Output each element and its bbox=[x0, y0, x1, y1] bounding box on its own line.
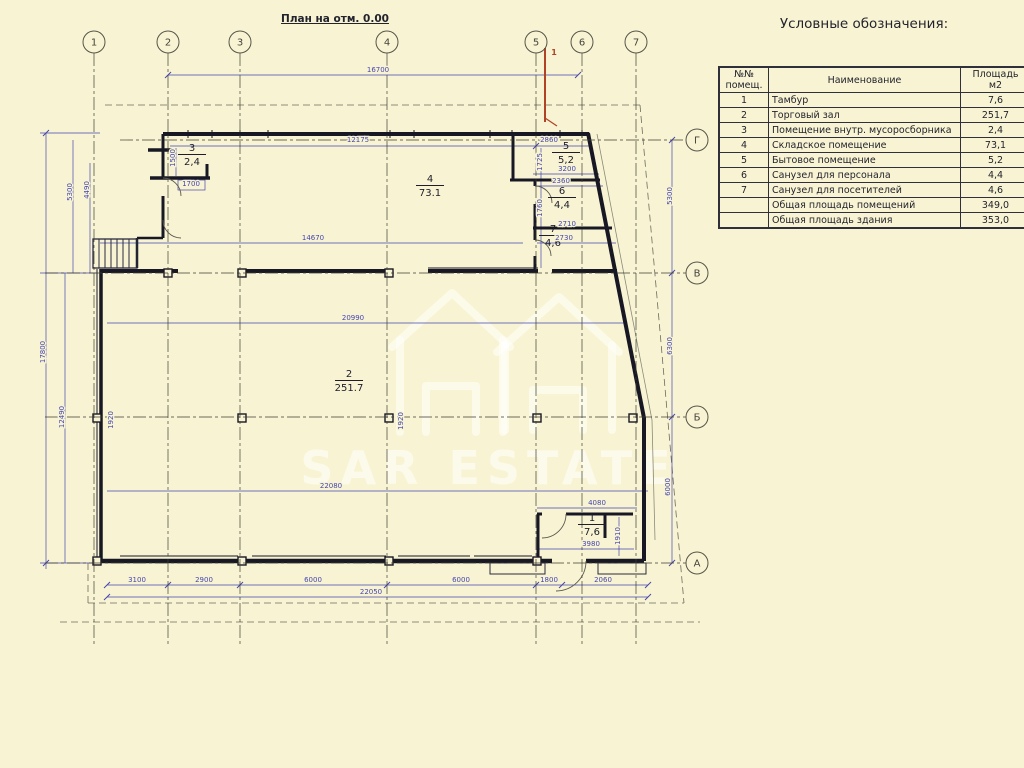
legend-row: 3Помещение внутр. мусоросборника2,4 bbox=[719, 123, 1024, 138]
column-marker bbox=[238, 414, 246, 422]
dimension-label: 4080 bbox=[588, 499, 606, 507]
grid-column-label: 2 bbox=[165, 38, 171, 49]
entrance-steps bbox=[490, 563, 646, 574]
dimension-label: 1760 bbox=[536, 199, 544, 217]
dimension-label: 6300 bbox=[666, 337, 674, 355]
dimension-label: 2900 bbox=[195, 576, 213, 584]
legend-cell-number: 4 bbox=[719, 138, 769, 153]
room-number: 6 bbox=[559, 186, 565, 197]
legend-cell-number bbox=[719, 198, 769, 213]
dimension-label: 1700 bbox=[182, 180, 200, 188]
drawing-title: План на отм. 0.00 bbox=[270, 13, 400, 25]
grid-column-label: 4 bbox=[384, 38, 390, 49]
legend-row: Общая площадь здания353,0 bbox=[719, 213, 1024, 229]
legend-panel: Условные обозначения: №№ помещ.Наименова… bbox=[716, 16, 1012, 229]
dimension-label: 6000 bbox=[452, 576, 470, 584]
grid-column-label: 7 bbox=[633, 38, 639, 49]
column-marker bbox=[385, 414, 393, 422]
grid-column-label: 5 bbox=[533, 38, 539, 49]
dimension-label: 4490 bbox=[83, 181, 91, 199]
watermark-house-icon bbox=[392, 293, 510, 347]
dimension-label: 12175 bbox=[347, 136, 369, 144]
dimension-label: 16700 bbox=[367, 66, 389, 74]
room-area: 2,4 bbox=[184, 157, 200, 168]
dimension-label: 1920 bbox=[397, 412, 405, 430]
legend-cell-number: 7 bbox=[719, 183, 769, 198]
legend-row: 2Торговый зал251,7 bbox=[719, 108, 1024, 123]
legend-row: Общая площадь помещений349,0 bbox=[719, 198, 1024, 213]
legend-title: Условные обозначения: bbox=[716, 16, 1012, 32]
dimension-label: 22050 bbox=[360, 588, 382, 596]
grid-row-label: Г bbox=[694, 136, 700, 147]
legend-cell-name: Санузел для персонала bbox=[769, 168, 961, 183]
dimension-label: 5300 bbox=[666, 187, 674, 205]
room-number: 4 bbox=[427, 174, 433, 185]
room-number: 2 bbox=[346, 369, 352, 380]
grid-row-label: В bbox=[694, 269, 701, 280]
column-marker bbox=[385, 557, 393, 565]
legend-row: 5Бытовое помещение5,2 bbox=[719, 153, 1024, 168]
grid-column-label: 3 bbox=[237, 38, 243, 49]
legend-cell-area: 5,2 bbox=[961, 153, 1024, 168]
legend-row: 1Тамбур7,6 bbox=[719, 93, 1024, 108]
room-area: 7,6 bbox=[584, 527, 600, 538]
dim-ticks bbox=[43, 72, 675, 600]
watermark-house-icon bbox=[497, 297, 619, 352]
dimension-lines bbox=[40, 72, 675, 600]
roof-dashed-outline bbox=[60, 105, 700, 622]
legend-cell-number: 5 bbox=[719, 153, 769, 168]
column-marker bbox=[533, 557, 541, 565]
legend-cell-name: Складское помещение bbox=[769, 138, 961, 153]
column-marker bbox=[533, 414, 541, 422]
column-marker bbox=[238, 557, 246, 565]
grid-row-label: Б bbox=[694, 413, 701, 424]
dimension-label: 6000 bbox=[664, 478, 672, 496]
legend-cell-area: 73,1 bbox=[961, 138, 1024, 153]
dimension-label: 1920 bbox=[107, 411, 115, 429]
legend-cell-area: 353,0 bbox=[961, 213, 1024, 229]
legend-cell-area: 251,7 bbox=[961, 108, 1024, 123]
legend-col-header: Площадь м2 bbox=[961, 67, 1024, 93]
legend-cell-name: Тамбур bbox=[769, 93, 961, 108]
legend-cell-name: Общая площадь здания bbox=[769, 213, 961, 229]
dimension-label: 1800 bbox=[540, 576, 558, 584]
dimension-label: 2060 bbox=[594, 576, 612, 584]
dimension-label: 2360 bbox=[552, 177, 570, 185]
legend-cell-area: 2,4 bbox=[961, 123, 1024, 138]
legend-cell-name: Помещение внутр. мусоросборника bbox=[769, 123, 961, 138]
dimension-label: 3100 bbox=[128, 576, 146, 584]
watermark-text: SAR ESTATE bbox=[300, 441, 677, 495]
legend-row: 4Складское помещение73,1 bbox=[719, 138, 1024, 153]
legend-cell-number: 2 bbox=[719, 108, 769, 123]
dimension-label: 3980 bbox=[582, 540, 600, 548]
dimension-labels: 1670012175286032002360271027301700146702… bbox=[39, 66, 674, 596]
revision-number: 1 bbox=[551, 48, 557, 57]
revision-marker: 1 bbox=[545, 48, 557, 126]
legend-row: 6Санузел для персонала4,4 bbox=[719, 168, 1024, 183]
dimension-label: 12490 bbox=[58, 406, 66, 428]
dimension-label: 2730 bbox=[555, 234, 573, 242]
legend-table: №№ помещ.НаименованиеПлощадь м2 1Тамбур7… bbox=[718, 66, 1024, 229]
dimension-label: 1500 bbox=[169, 149, 177, 167]
room-number: 3 bbox=[189, 143, 195, 154]
legend-col-header: Наименование bbox=[769, 67, 961, 93]
grid-column-label: 1 bbox=[91, 38, 97, 49]
dimension-label: 3200 bbox=[558, 165, 576, 173]
legend-cell-area: 349,0 bbox=[961, 198, 1024, 213]
legend-cell-number bbox=[719, 213, 769, 229]
legend-cell-number: 3 bbox=[719, 123, 769, 138]
legend-table-header: №№ помещ.НаименованиеПлощадь м2 bbox=[719, 67, 1024, 93]
legend-cell-number: 6 bbox=[719, 168, 769, 183]
room-area: 73.1 bbox=[419, 188, 441, 199]
legend-cell-name: Общая площадь помещений bbox=[769, 198, 961, 213]
dimension-label: 1725 bbox=[536, 153, 544, 171]
dimension-label: 20990 bbox=[342, 314, 364, 322]
legend-cell-number: 1 bbox=[719, 93, 769, 108]
room-number: 5 bbox=[563, 141, 569, 152]
legend-col-header: №№ помещ. bbox=[719, 67, 769, 93]
grid-column-label: 6 bbox=[579, 38, 585, 49]
dimension-label: 2710 bbox=[558, 220, 576, 228]
dimension-label: 2860 bbox=[540, 136, 558, 144]
stairs bbox=[93, 239, 137, 268]
grid-row-label: А bbox=[694, 559, 701, 570]
dimension-label: 14670 bbox=[302, 234, 324, 242]
legend-row: 7Санузел для посетителей4,6 bbox=[719, 183, 1024, 198]
room-number: 1 bbox=[589, 513, 595, 524]
legend-cell-area: 7,6 bbox=[961, 93, 1024, 108]
legend-cell-name: Санузел для посетителей bbox=[769, 183, 961, 198]
room-area: 251.7 bbox=[335, 383, 364, 394]
dimension-label: 5300 bbox=[66, 183, 74, 201]
floor-plan-page: SAR ESTATE bbox=[0, 0, 1024, 768]
room-area: 4,4 bbox=[554, 200, 570, 211]
door-arcs bbox=[163, 178, 586, 591]
legend-cell-area: 4,4 bbox=[961, 168, 1024, 183]
legend-cell-name: Бытовое помещение bbox=[769, 153, 961, 168]
dimension-label: 1910 bbox=[614, 527, 622, 545]
dimension-label: 17800 bbox=[39, 341, 47, 363]
legend-cell-area: 4,6 bbox=[961, 183, 1024, 198]
dimension-label: 6000 bbox=[304, 576, 322, 584]
legend-cell-name: Торговый зал bbox=[769, 108, 961, 123]
dimension-label: 22080 bbox=[320, 482, 342, 490]
